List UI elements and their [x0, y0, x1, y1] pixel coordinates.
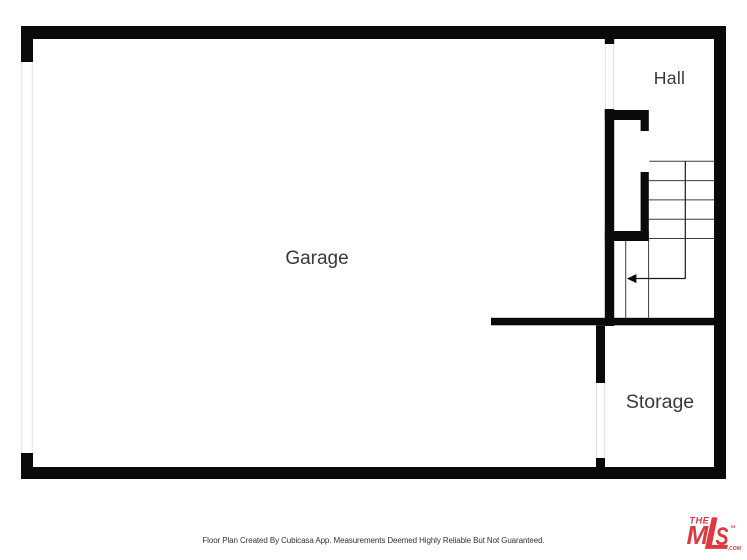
svg-text:TM: TM — [730, 525, 735, 529]
svg-text:Storage: Storage — [626, 391, 694, 413]
svg-text:Floor Plan Created By Cubicasa: Floor Plan Created By Cubicasa App. Meas… — [202, 536, 544, 545]
svg-text:Hall: Hall — [654, 68, 686, 88]
svg-text:S: S — [716, 523, 729, 551]
svg-text:.COM: .COM — [728, 546, 742, 552]
svg-text:Garage: Garage — [285, 248, 348, 269]
